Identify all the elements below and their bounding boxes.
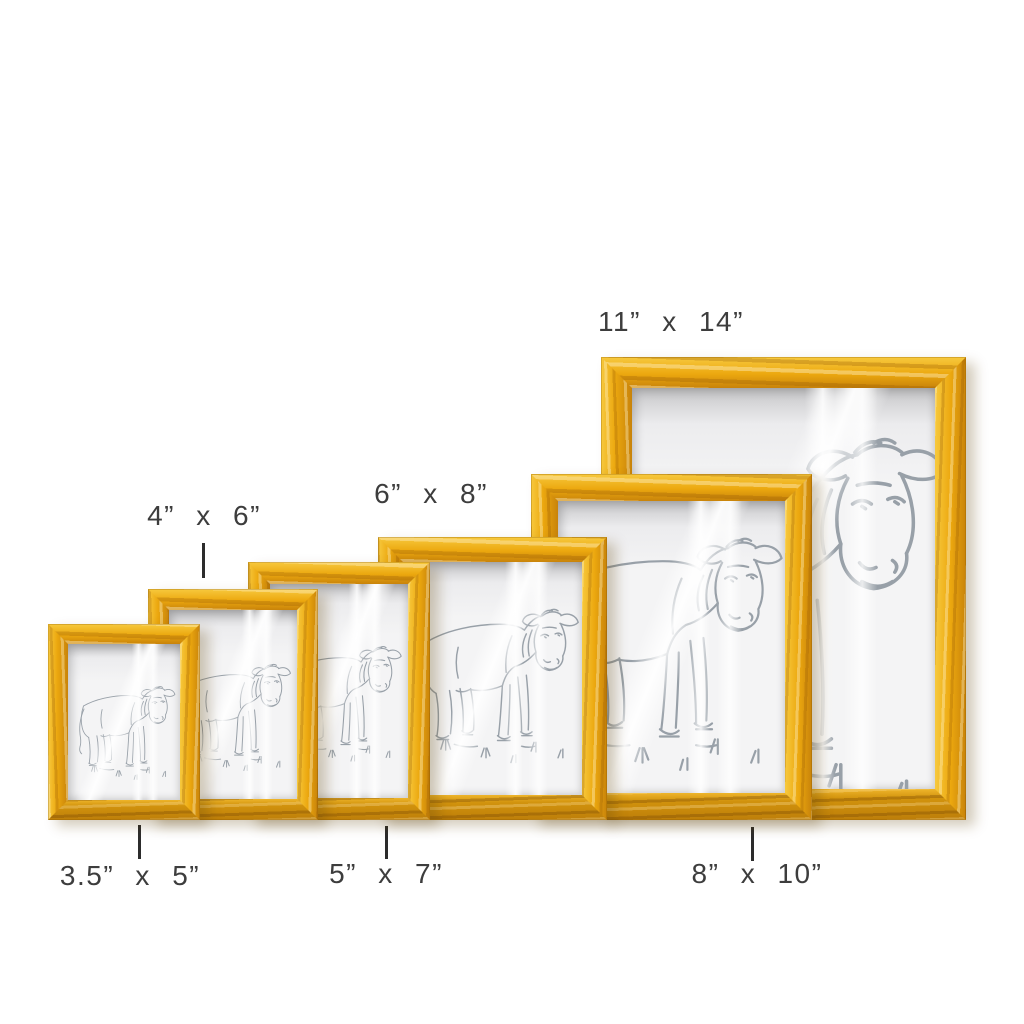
frame-rail-top: [248, 562, 430, 584]
size-label-4x6: 4” x 6”: [147, 500, 261, 532]
picture-frame-3-5x5: [48, 624, 200, 820]
frame-rail-left: [48, 624, 68, 820]
pointer-line-3-5x5: [138, 825, 141, 859]
frame-rail-top: [148, 589, 318, 610]
size-label-8x10: 8” x 10”: [692, 858, 823, 890]
frame-rail-top: [378, 537, 607, 562]
size-label-11x14: 11” x 14”: [598, 306, 744, 338]
frame-rail-right: [785, 474, 812, 820]
frame-rail-top: [531, 474, 812, 501]
frame-rail-bottom: [48, 800, 200, 820]
frame-rail-right: [297, 589, 318, 820]
size-label-3-5x5: 3.5” x 5”: [60, 860, 200, 892]
pointer-line-8x10: [751, 827, 754, 861]
size-label-6x8: 6” x 8”: [374, 478, 488, 510]
frame-rail-right: [582, 537, 607, 820]
frame-rail-right: [180, 624, 200, 820]
bull-sketch: [68, 644, 180, 798]
frame-rail-top: [48, 624, 200, 644]
frame-size-comparison-image: 11” x 14” 6” x 8” 4” x 6” 3.5” x 5” 5” x…: [0, 0, 1024, 1024]
frame-rail-right: [408, 562, 430, 820]
pointer-line-4x6: [202, 543, 205, 578]
frame-rail-right: [935, 357, 966, 820]
pointer-line-5x7: [385, 826, 388, 859]
size-label-5x7: 5” x 7”: [329, 858, 443, 890]
framed-print: [68, 644, 180, 800]
frame-rail-top: [601, 357, 966, 388]
